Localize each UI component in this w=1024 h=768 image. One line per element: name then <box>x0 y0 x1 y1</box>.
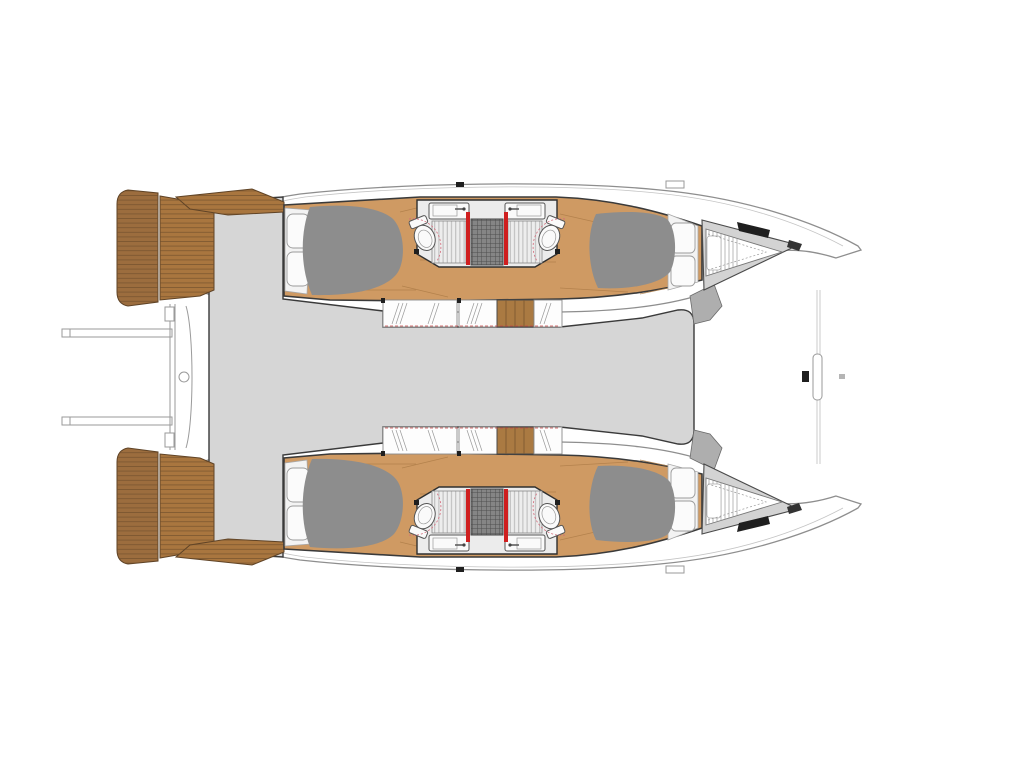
floorplan-canvas <box>0 0 1024 768</box>
transom-bracket <box>165 307 174 321</box>
catamaran-floorplan-svg <box>0 0 1024 768</box>
bridle-shackle <box>839 374 845 379</box>
transom-bracket <box>165 433 174 447</box>
bowsprit-channel <box>813 354 822 400</box>
davit-winch-circle <box>179 372 189 382</box>
transom-crossbeam <box>170 304 175 450</box>
forestay-fitting <box>802 371 809 382</box>
